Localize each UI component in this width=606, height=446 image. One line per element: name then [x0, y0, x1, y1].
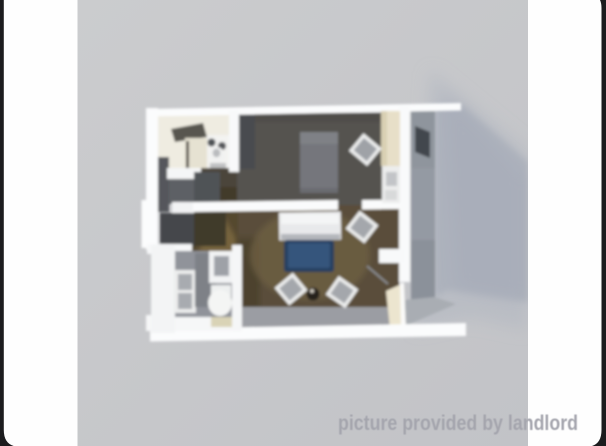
svg-text:picture provided by landlord: picture provided by landlord — [338, 412, 578, 435]
